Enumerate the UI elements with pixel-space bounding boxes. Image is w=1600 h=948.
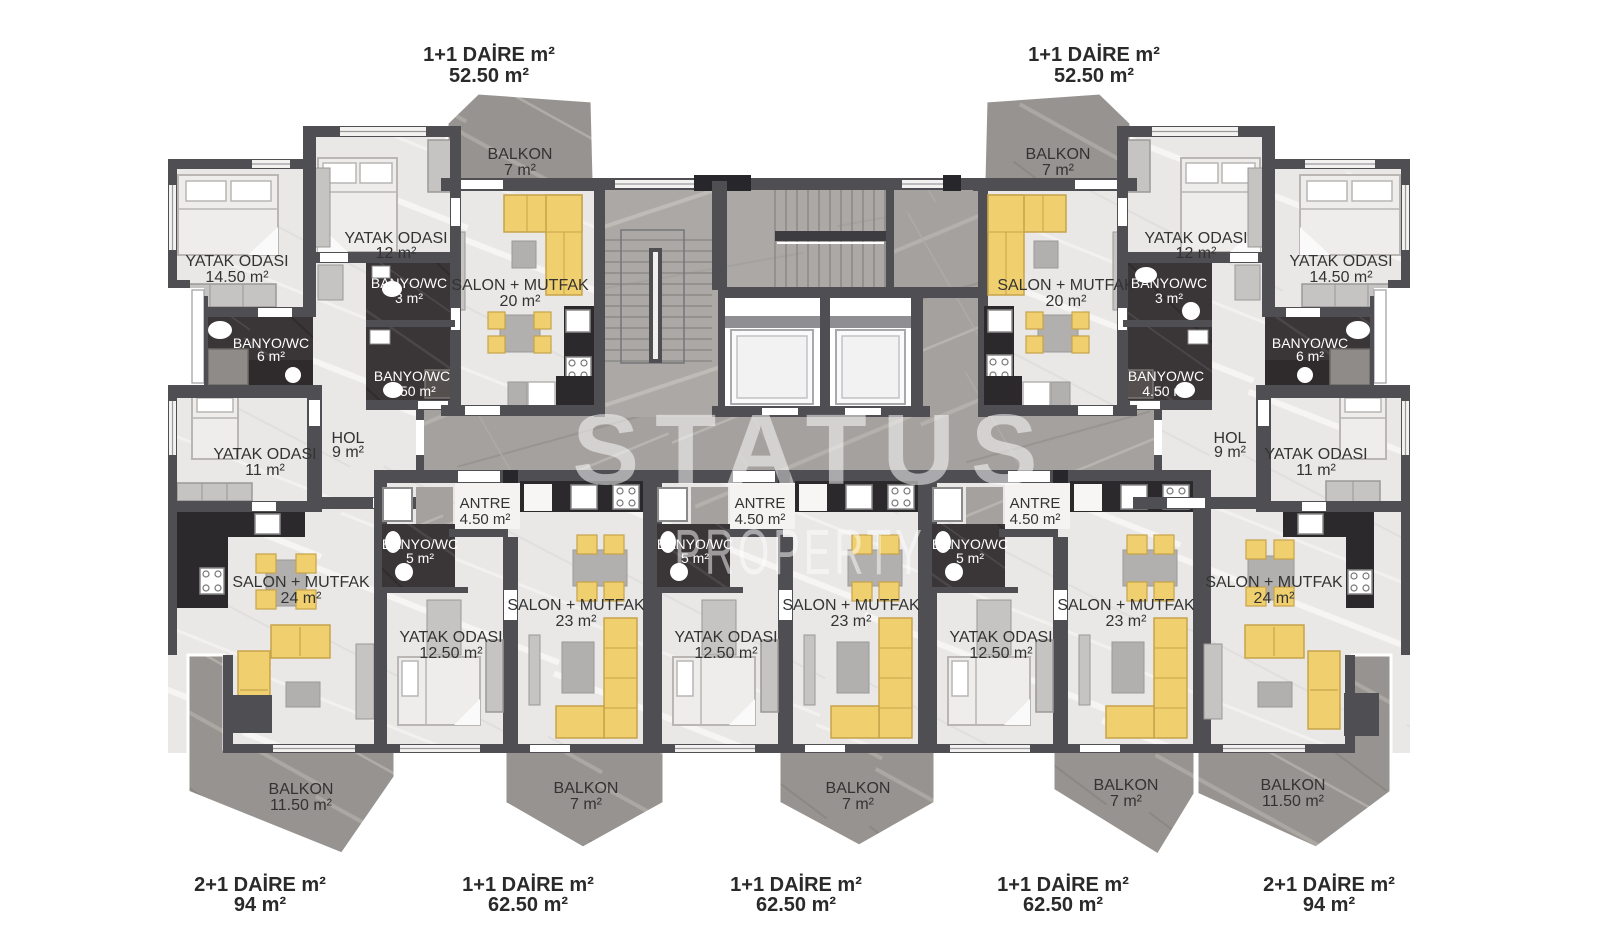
svg-text:BANYO/WC: BANYO/WC <box>1128 368 1204 384</box>
svg-text:7 m²: 7 m² <box>842 796 875 813</box>
svg-text:9 m²: 9 m² <box>332 444 365 461</box>
svg-text:YATAK ODASI: YATAK ODASI <box>674 629 777 646</box>
svg-text:BANYO/WC: BANYO/WC <box>1131 275 1207 291</box>
svg-text:3 m²: 3 m² <box>395 290 423 306</box>
svg-text:BALKON: BALKON <box>826 780 891 797</box>
svg-text:4.50 m²: 4.50 m² <box>1010 511 1061 528</box>
svg-text:12 m²: 12 m² <box>1176 245 1218 262</box>
svg-text:BALKON: BALKON <box>1026 146 1091 163</box>
svg-text:STATUS: STATUS <box>572 394 1053 506</box>
svg-text:52.50 m²: 52.50 m² <box>449 65 529 87</box>
svg-text:9 m²: 9 m² <box>1214 444 1247 461</box>
svg-text:BALKON: BALKON <box>1261 777 1326 794</box>
svg-text:7 m²: 7 m² <box>1042 162 1075 179</box>
svg-text:BALKON: BALKON <box>269 781 334 798</box>
svg-text:12 m²: 12 m² <box>376 245 418 262</box>
svg-text:94 m²: 94 m² <box>1303 894 1356 916</box>
svg-text:SALON + MUTFAK: SALON + MUTFAK <box>232 574 370 591</box>
svg-text:1+1 DAİRE m²: 1+1 DAİRE m² <box>997 873 1129 896</box>
svg-text:BALKON: BALKON <box>488 146 553 163</box>
svg-text:11.50 m²: 11.50 m² <box>1262 793 1325 810</box>
svg-text:BALKON: BALKON <box>554 780 619 797</box>
svg-text:12.50 m²: 12.50 m² <box>419 645 483 662</box>
svg-text:7 m²: 7 m² <box>1110 793 1143 810</box>
svg-text:6 m²: 6 m² <box>257 348 285 364</box>
svg-text:24 m²: 24 m² <box>281 590 323 607</box>
svg-text:1+1 DAİRE m²: 1+1 DAİRE m² <box>462 873 594 896</box>
svg-text:20 m²: 20 m² <box>1046 293 1088 310</box>
svg-text:SALON + MUTFAK: SALON + MUTFAK <box>1205 574 1343 591</box>
svg-text:4.50 m²: 4.50 m² <box>1142 383 1190 399</box>
svg-text:PROPERTY: PROPERTY <box>674 518 925 589</box>
svg-text:62.50 m²: 62.50 m² <box>756 894 836 916</box>
svg-text:23 m²: 23 m² <box>1106 613 1148 630</box>
svg-text:23 m²: 23 m² <box>556 613 598 630</box>
svg-text:5 m²: 5 m² <box>956 550 984 566</box>
svg-text:1+1 DAİRE m²: 1+1 DAİRE m² <box>730 873 862 896</box>
svg-text:6 m²: 6 m² <box>1296 348 1324 364</box>
svg-text:YATAK ODASI: YATAK ODASI <box>213 446 316 463</box>
svg-text:62.50 m²: 62.50 m² <box>488 894 568 916</box>
svg-text:2+1 DAİRE m²: 2+1 DAİRE m² <box>194 873 326 896</box>
svg-text:52.50 m²: 52.50 m² <box>1054 65 1134 87</box>
svg-text:11.50 m²: 11.50 m² <box>270 797 333 814</box>
svg-text:23 m²: 23 m² <box>831 613 873 630</box>
svg-text:YATAK ODASI: YATAK ODASI <box>949 629 1052 646</box>
svg-text:YATAK ODASI: YATAK ODASI <box>185 253 288 270</box>
svg-text:7 m²: 7 m² <box>504 162 537 179</box>
svg-text:1+1 DAİRE m²: 1+1 DAİRE m² <box>1028 43 1160 66</box>
svg-text:SALON + MUTFAK: SALON + MUTFAK <box>451 277 589 294</box>
svg-text:12.50 m²: 12.50 m² <box>969 645 1033 662</box>
svg-text:7 m²: 7 m² <box>570 796 603 813</box>
svg-text:5 m²: 5 m² <box>406 550 434 566</box>
svg-text:1+1 DAİRE m²: 1+1 DAİRE m² <box>423 43 555 66</box>
svg-text:2+1 DAİRE m²: 2+1 DAİRE m² <box>1263 873 1395 896</box>
svg-text:BANYO/WC: BANYO/WC <box>374 368 450 384</box>
svg-text:62.50 m²: 62.50 m² <box>1023 894 1103 916</box>
svg-text:20 m²: 20 m² <box>500 293 542 310</box>
svg-text:ANTRE: ANTRE <box>460 495 511 512</box>
svg-text:11 m²: 11 m² <box>245 462 285 479</box>
svg-text:YATAK ODASI: YATAK ODASI <box>1289 253 1392 270</box>
svg-text:BALKON: BALKON <box>1094 777 1159 794</box>
svg-text:SALON + MUTFAK: SALON + MUTFAK <box>997 277 1135 294</box>
svg-text:11 m²: 11 m² <box>1296 462 1336 479</box>
svg-text:94 m²: 94 m² <box>234 894 287 916</box>
svg-text:YATAK ODASI: YATAK ODASI <box>399 629 502 646</box>
svg-text:24 m²: 24 m² <box>1254 590 1296 607</box>
svg-text:4.50 m²: 4.50 m² <box>460 511 511 528</box>
svg-text:SALON + MUTFAK: SALON + MUTFAK <box>507 597 645 614</box>
svg-text:14.50 m²: 14.50 m² <box>205 269 269 286</box>
svg-text:4.50 m²: 4.50 m² <box>388 383 436 399</box>
svg-text:SALON + MUTFAK: SALON + MUTFAK <box>1057 597 1195 614</box>
svg-text:3 m²: 3 m² <box>1155 290 1183 306</box>
svg-text:BANYO/WC: BANYO/WC <box>371 275 447 291</box>
svg-text:12.50 m²: 12.50 m² <box>694 645 758 662</box>
svg-text:YATAK ODASI: YATAK ODASI <box>1264 446 1367 463</box>
svg-text:SALON + MUTFAK: SALON + MUTFAK <box>782 597 920 614</box>
svg-text:14.50 m²: 14.50 m² <box>1309 269 1373 286</box>
